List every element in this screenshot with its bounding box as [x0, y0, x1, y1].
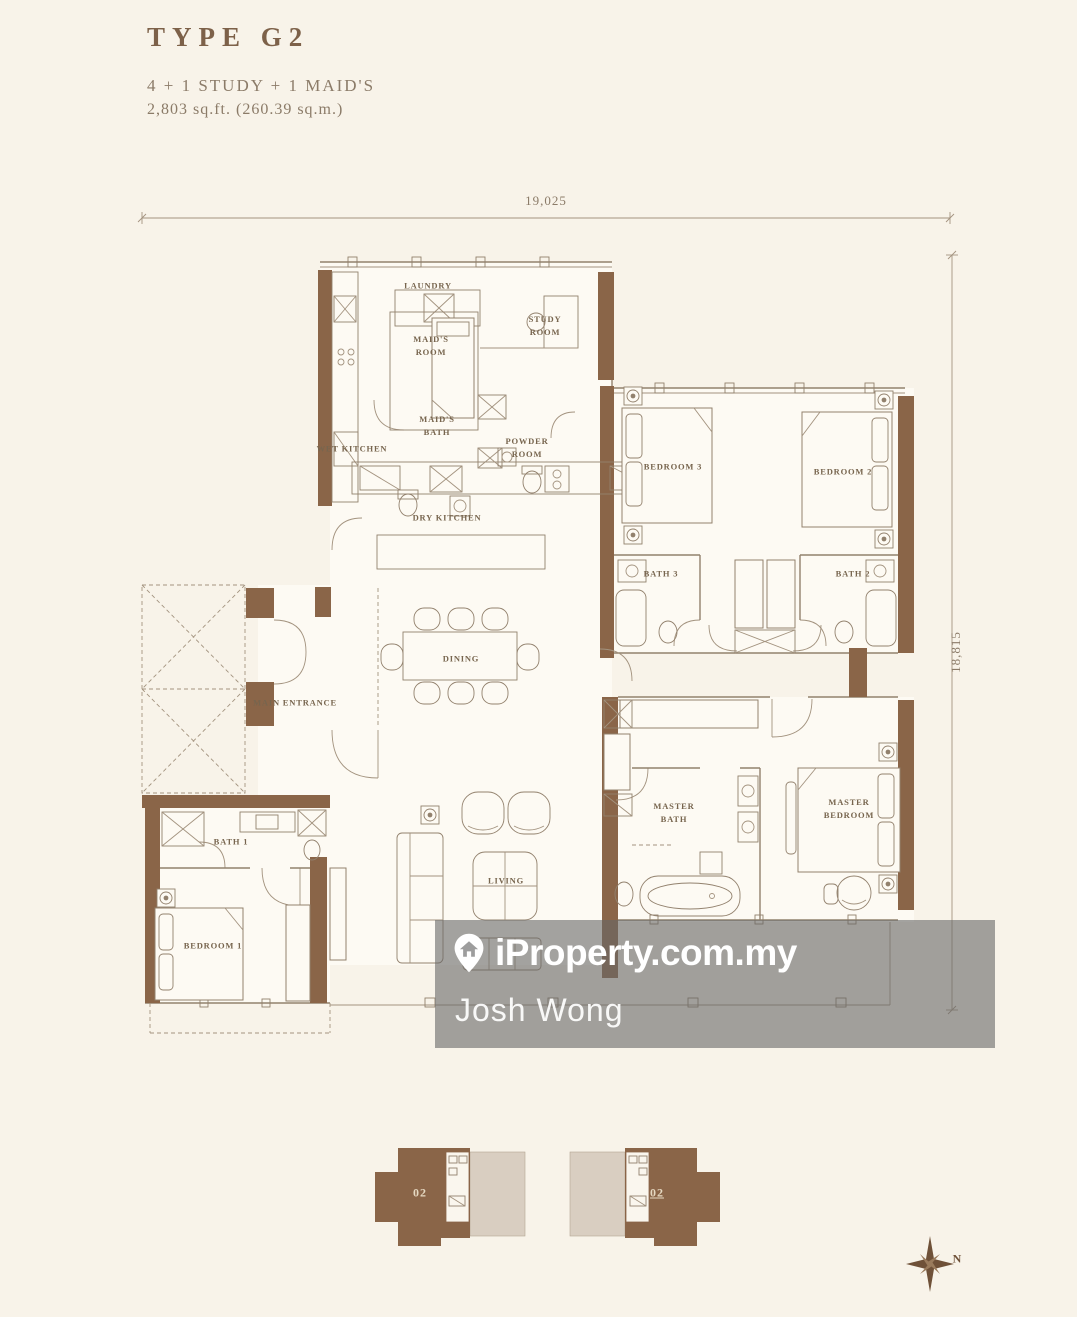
bed-icon	[155, 908, 243, 1000]
watermark-agent: Josh Wong	[455, 992, 624, 1029]
ceiling-fixture-icon	[157, 889, 175, 907]
wardrobe-icon	[735, 560, 763, 628]
room-fills	[145, 262, 914, 1003]
wardrobe-icon	[286, 905, 310, 1001]
compass-icon	[906, 1236, 954, 1292]
wardrobe-icon	[767, 560, 795, 628]
unit-core	[626, 1152, 649, 1222]
watermark-brand-text: iProperty.com.my	[495, 932, 797, 974]
bed-icon	[802, 412, 892, 527]
ceiling-fixture-icon	[624, 387, 642, 405]
bed-icon	[786, 768, 900, 872]
wardrobe-icon	[620, 700, 758, 728]
key-plan	[375, 1148, 720, 1246]
floor-plan-page: .w{fill:#8a6548;} .ln{stroke:#92816d;str…	[0, 0, 1077, 1317]
ceiling-fixture-icon	[879, 875, 897, 893]
floor-plan-drawing: .w{fill:#8a6548;} .ln{stroke:#92816d;str…	[0, 0, 1077, 1317]
ceiling-fixture-icon	[624, 526, 642, 544]
watermark-band: iProperty.com.my Josh Wong	[435, 920, 995, 1048]
watermark-brand: iProperty.com.my	[453, 932, 797, 974]
ceiling-fixture-icon	[875, 530, 893, 548]
location-pin-house-icon	[453, 932, 485, 974]
unit-core	[446, 1152, 469, 1222]
bed-icon	[432, 318, 474, 418]
ceiling-fixture-icon	[875, 391, 893, 409]
tv-console-icon	[330, 868, 346, 960]
side-table-icon	[421, 806, 439, 824]
wardrobe-icon	[604, 734, 630, 790]
ceiling-fixture-icon	[879, 743, 897, 761]
bed-icon	[622, 408, 712, 523]
